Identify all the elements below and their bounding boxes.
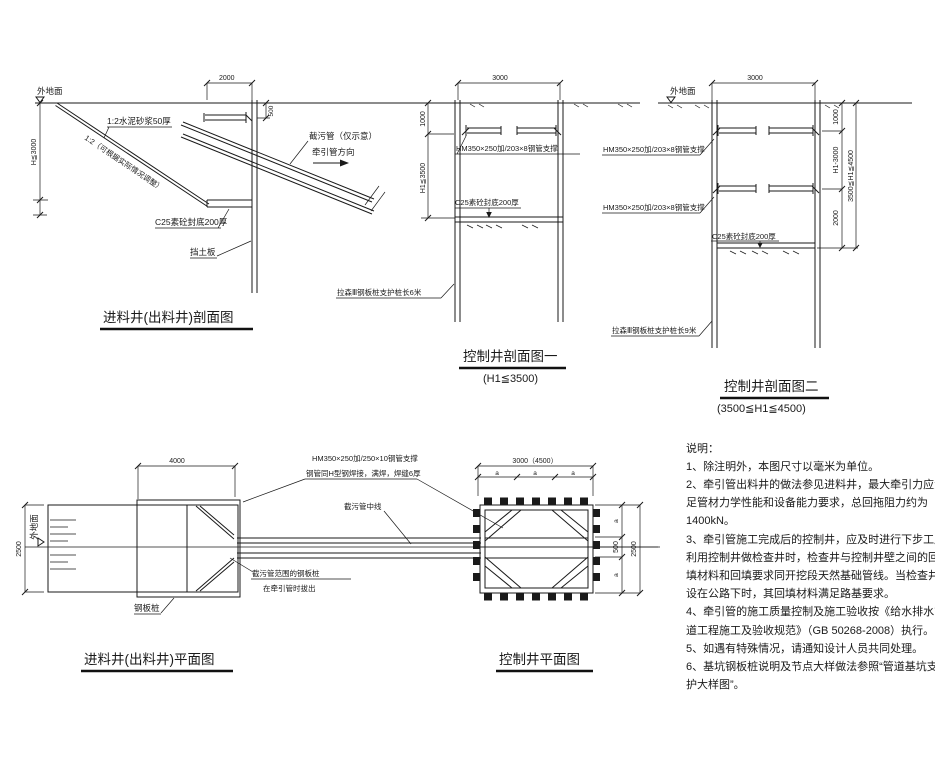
dim-2000: 2000 [219,75,235,82]
dim-seg-a3: a [571,470,575,477]
dim-a-bottom: a [613,573,620,577]
well-box-outer [137,500,240,597]
section3-title: 控制井剖面图二 [724,379,819,394]
top-beam [204,112,252,123]
dim-width: 3000（4500） [512,457,557,465]
note-line: 2、牵引管出料井的做法参见进料井，最大牵引力应满 [686,477,935,491]
note-line: 1、除注明外，本图尺寸以毫米为单位。 [686,459,879,473]
ground-level-marker [36,97,44,103]
bottom-seal [717,243,815,248]
mortar-leader [104,127,172,138]
removal-note-2: 在牵引管时拔出 [263,583,316,593]
seal-label: C25素砼封底200厚 [155,217,228,227]
dim-500: 500 [613,541,620,553]
strut-l2-left [713,183,756,194]
strut1-label: HM350×250加/203×8钢管支撑 [603,144,705,154]
section2-title: 控制井剖面图一 [463,349,558,364]
section1-title: 进料井(出料井)剖面图 [103,310,234,325]
corner-braces [485,510,588,588]
sheet-piles [712,100,820,348]
dim-a-top: a [613,519,620,523]
note-line: 4、牵引管的施工质量控制及施工验收按《给水排水管 [686,604,935,618]
notes-heading: 说明： [686,441,719,455]
pipe-note-label: 截污管（仅示意） [309,131,377,141]
removal-note-1: 截污管范围的钢板桩 [252,568,320,578]
pile-label: 拉森Ⅲ钢板桩支护桩长9米 [612,325,697,335]
dim-2000: 2000 [833,210,840,226]
seal-label: C25素砼封底200厚 [455,197,519,207]
dim-1000: 1000 [420,111,427,127]
dim-total: 3500≦H1≦4500 [848,150,855,202]
strut-left [462,125,501,136]
ground-level-marker [667,97,675,103]
strut-l1-right [769,125,819,136]
feed-well-section-view: 外地面 2000 500 H≦3000 1:2水泥砂浆50厚 1:2（可根据实际… [31,75,640,329]
centerline-label: 截污管中线 [344,501,382,511]
board-label: 挡土板 [190,247,216,257]
dim-1000: 1000 [833,109,840,125]
pipe-note-leader [290,141,308,164]
ground-label: 外地面 [670,86,696,96]
dim-width: 3000 [747,75,763,82]
pile-label: 拉森Ⅲ钢板桩支护桩长6米 [337,287,422,297]
centerline-leader [384,511,411,544]
corner-braces [196,506,234,591]
mortar-label: 1:2水泥砂浆50厚 [107,116,171,126]
control-well-plan-view: 3000（4500） a a a a 500 a 2500 控制井平面图 [475,457,660,671]
dim-seg-a2: a [533,470,537,477]
pipe-break-marks [365,186,385,211]
note-line: 足管材力学性能和设备能力要求，总回拖阻力约为 [686,495,928,509]
bottom-seal [455,217,563,222]
section2-subtitle: (H1≦3500) [483,373,538,385]
strut2-label: HM350×250加/203×8钢管支撑 [603,202,705,212]
strut-label: HM350×250加/250×10钢管支撑 [312,453,418,463]
dim-2500: 2500 [16,541,23,557]
well-wall-outer [480,505,593,593]
ground-level-marker [38,538,44,546]
bottom-seal [207,200,252,207]
note-line: 3、牵引管施工完成后的控制井，应及时进行下步工序， [686,532,935,546]
section3-subtitle: (3500≦H1≦4500) [717,403,806,415]
control-well-section-view-2: 外地面 3000 HM350×250加/203×8钢管支撑 HM350×250加… [602,75,912,415]
note-line: 1400kN。 [686,515,735,527]
dim-line-2000 [207,83,252,100]
control-well-section-view-1: 3000 1000 H1≦3500 HM350×250加/203×8钢管支撑 C… [336,75,632,385]
dim-width: 3000 [492,75,508,82]
dim-h1-3000: H1-3000 [833,146,840,173]
seal-label: C25素砼封底200厚 [712,231,776,241]
plan1-title: 进料井(出料井)平面图 [84,652,215,667]
note-line: 道工程施工及验收规范》（GB 50268-2008）执行。 [686,623,934,637]
note-line: 填材料和回填要求同开挖段天然基础管线。当检查井 [686,568,935,582]
note-line: 护大样图”。 [686,677,745,691]
dim-depth: H1≦3500 [420,163,427,193]
well-wall-inner [485,510,588,588]
slope-note: 1:2（可根据实际情况调整） [83,132,166,192]
feed-well-plan-view: 4000 外地面 2500 钢板桩 截污管范围的钢板桩 在牵引管时拔出 HM35… [16,453,658,671]
notes-block: 说明： 1、除注明外，本图尺寸以毫米为单位。 2、牵引管出料井的做法参见进料井，… [686,441,935,691]
note-line: 5、如遇有特殊情况，请通知设计人员共同处理。 [686,641,923,655]
dim-2500: 2500 [631,541,638,557]
strut-label: HM350×250加/203×8钢管支撑 [456,143,558,153]
strut-l2-right [769,183,819,194]
dim-4000: 4000 [169,458,185,465]
pipes [237,538,481,558]
sheet-pile [252,100,257,293]
dim-depth: H≦3000 [31,139,38,166]
strut-right [517,125,561,136]
direction-label: 牵引管方向 [312,147,355,157]
pipe-band [485,538,588,558]
sheet-pile-label: 钢板桩 [134,603,160,613]
slope-hatch [50,520,76,569]
drawing-canvas: 外地面 2000 500 H≦3000 1:2水泥砂浆50厚 1:2（可根据实际… [0,0,935,782]
direction-arrowhead [340,160,349,167]
ground-label: 外地面 [29,514,39,540]
note-line: 设在公路下时，其回填材料满足路基要求。 [686,586,895,600]
dim-500: 500 [268,105,275,116]
strut-l1-left [713,125,756,136]
plan2-title: 控制井平面图 [499,652,580,667]
ground-label: 外地面 [37,86,63,96]
cad-drawing-sheet: 外地面 2000 500 H≦3000 1:2水泥砂浆50厚 1:2（可根据实际… [0,0,935,782]
weld-label: 钢管同H型钢焊接，满焊，焊缝6厚 [306,468,421,478]
note-line: 利用控制井做检查井时，检查井与控制井壁之间的回 [686,550,935,564]
dim-seg-a1: a [495,470,499,477]
note-line: 6、基坑钢板桩说明及节点大样做法参照“管道基坑支 [686,659,935,673]
